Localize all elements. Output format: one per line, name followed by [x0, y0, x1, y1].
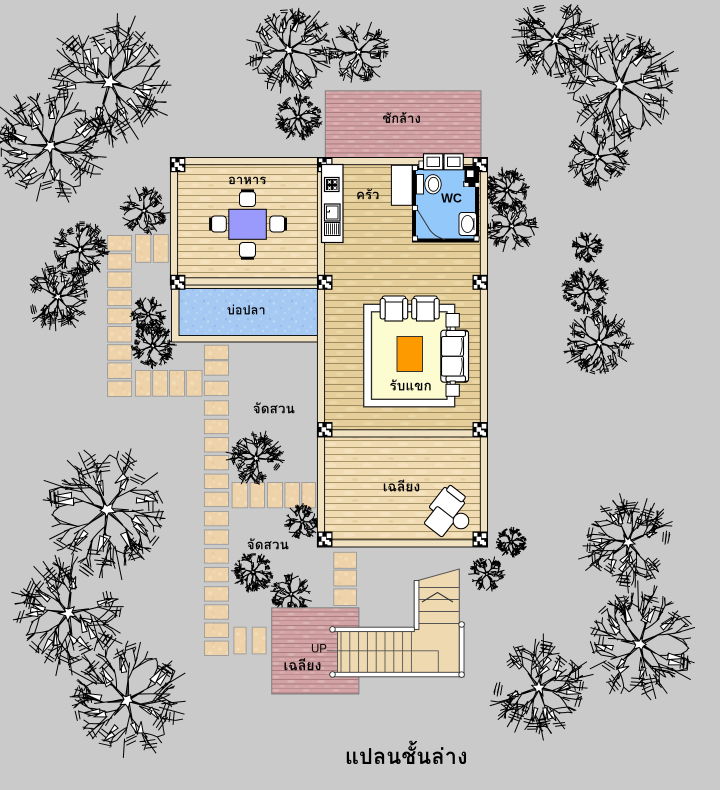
svg-text:UP: UP	[311, 644, 327, 656]
svg-text:WC: WC	[441, 192, 462, 206]
